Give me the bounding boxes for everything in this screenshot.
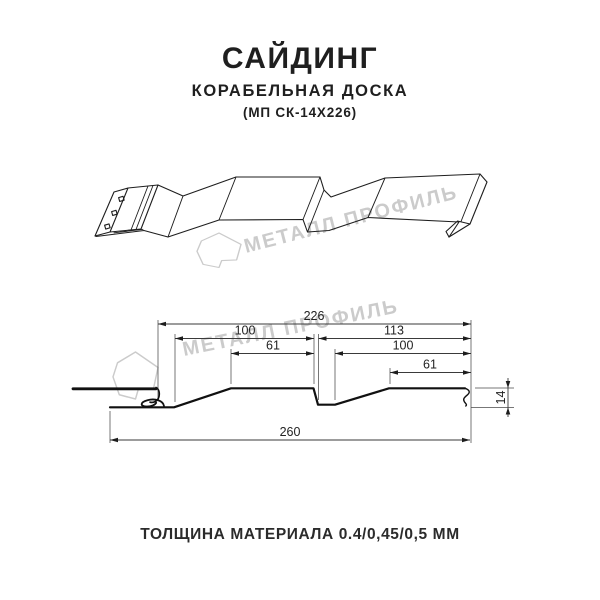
watermark-logo-icon [113,352,158,399]
profile-section [73,388,469,408]
dim-label-260: 260 [280,425,301,439]
dim-label-100-left: 100 [235,324,256,338]
watermark-logo-icon [197,233,241,268]
dim-label-14: 14 [494,391,508,405]
nail-hole [112,210,118,215]
dim-label-113: 113 [384,324,404,338]
nail-hole [119,196,125,201]
material-thickness-label: ТОЛЩИНА МАТЕРИАЛА 0.4/0,45/0,5 ММ [0,526,600,544]
dim-label-61-right: 61 [423,358,437,372]
dimension-lines [110,322,510,443]
dim-label-61-left: 61 [266,339,280,353]
product-drawing-page: САЙДИНГ КОРАБЕЛЬНАЯ ДОСКА (МП СК-14Х226)… [0,0,600,600]
dim-label-100-right: 100 [393,339,414,353]
nail-hole [105,224,111,229]
watermark-text: МЕТАЛЛ ПРОФИЛЬ [181,295,401,360]
dim-label-226: 226 [304,309,325,323]
profile-diagram: МЕТАЛЛ ПРОФИЛЬ МЕТАЛЛ ПРОФИЛЬ [0,0,600,600]
